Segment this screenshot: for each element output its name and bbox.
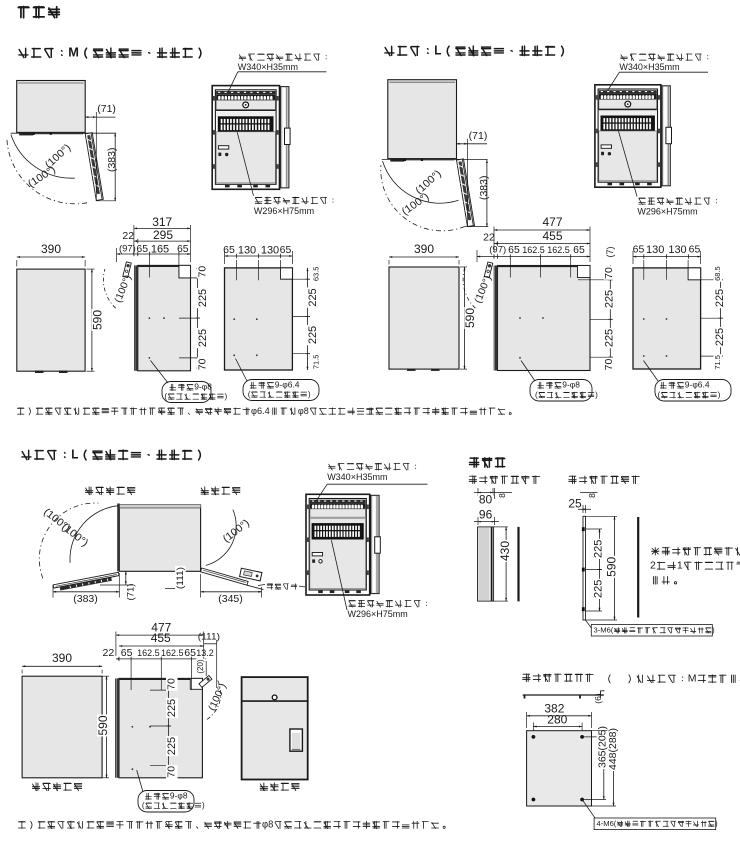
- svg-text:65: 65: [121, 647, 133, 659]
- svg-text:65: 65: [184, 647, 196, 659]
- svg-text:22: 22: [483, 232, 495, 244]
- svg-text:430: 430: [498, 541, 512, 561]
- svg-text:22: 22: [122, 230, 134, 242]
- svg-text:162.5: 162.5: [522, 245, 545, 255]
- svg-text:317: 317: [152, 215, 172, 229]
- svg-text:590: 590: [91, 310, 105, 330]
- svg-text:162.5: 162.5: [161, 648, 184, 658]
- svg-text:M: M: [688, 673, 697, 685]
- svg-text:φ6.4: φ6.4: [251, 405, 270, 416]
- svg-text:(71): (71): [469, 130, 488, 142]
- svg-text:): ): [202, 801, 205, 810]
- svg-text:9-φ6.4: 9-φ6.4: [685, 380, 710, 390]
- svg-text:W340×H35mm: W340×H35mm: [619, 62, 679, 72]
- svg-text:225: 225: [197, 329, 209, 347]
- svg-text:(71): (71): [126, 584, 137, 601]
- svg-text:225: 225: [166, 737, 178, 755]
- svg-text:71.5: 71.5: [311, 354, 320, 369]
- svg-text:70: 70: [603, 359, 615, 371]
- svg-text:(111): (111): [198, 631, 220, 642]
- svg-text:(: (: [248, 390, 251, 399]
- svg-text:590: 590: [463, 308, 477, 328]
- svg-text:): ): [718, 390, 721, 399]
- svg-text:(7): (7): [605, 246, 615, 257]
- svg-text:65: 65: [136, 243, 148, 255]
- svg-text:M: M: [68, 44, 79, 59]
- svg-text:9-φ6.4: 9-φ6.4: [275, 380, 300, 390]
- svg-text:(111): (111): [175, 567, 186, 589]
- svg-text:(383): (383): [478, 176, 490, 201]
- svg-text:96: 96: [479, 507, 493, 521]
- svg-text:(: (: [535, 390, 538, 399]
- svg-text:70: 70: [166, 766, 178, 778]
- svg-text:162.5: 162.5: [547, 245, 570, 255]
- svg-text:70: 70: [166, 678, 178, 690]
- svg-text:W340×H35mm: W340×H35mm: [327, 472, 387, 482]
- svg-text:25: 25: [568, 496, 582, 510]
- svg-text:225: 225: [714, 328, 726, 346]
- svg-text:162.5: 162.5: [137, 648, 160, 658]
- svg-text:448(288): 448(288): [607, 728, 619, 770]
- svg-text:65: 65: [573, 244, 585, 256]
- svg-text:65: 65: [223, 244, 235, 256]
- svg-text:φ8: φ8: [262, 820, 274, 831]
- svg-text:280: 280: [547, 712, 567, 726]
- svg-text:71.5: 71.5: [713, 355, 722, 370]
- svg-text:(71): (71): [97, 103, 116, 115]
- svg-text:8: 8: [497, 493, 507, 498]
- svg-text:130: 130: [261, 244, 279, 256]
- svg-text:L: L: [71, 446, 78, 461]
- svg-text:(97): (97): [119, 244, 136, 255]
- svg-text:80: 80: [479, 492, 493, 506]
- svg-text:13.2: 13.2: [196, 648, 214, 658]
- svg-text:225: 225: [714, 289, 726, 307]
- svg-text:225: 225: [197, 289, 209, 307]
- svg-text:W296×H75mm: W296×H75mm: [254, 206, 314, 216]
- svg-text:(: (: [142, 801, 145, 810]
- svg-text:225: 225: [593, 580, 605, 598]
- svg-text:9-φ8: 9-φ8: [194, 382, 212, 392]
- svg-text:295: 295: [153, 228, 173, 242]
- svg-text:22: 22: [103, 647, 115, 659]
- svg-text:(6): (6): [593, 693, 603, 704]
- svg-text:): ): [308, 390, 311, 399]
- svg-text:(383): (383): [106, 148, 118, 173]
- svg-text:225: 225: [593, 540, 605, 558]
- svg-text:(345): (345): [218, 593, 243, 605]
- svg-text:65: 65: [633, 244, 645, 256]
- svg-text:(: (: [164, 392, 167, 401]
- svg-text:L: L: [434, 42, 441, 57]
- svg-text:1: 1: [677, 560, 683, 572]
- svg-text:70: 70: [603, 267, 615, 279]
- svg-text:225: 225: [604, 290, 616, 308]
- svg-text:455: 455: [542, 229, 562, 243]
- svg-text:): ): [595, 390, 598, 399]
- svg-text:477: 477: [542, 215, 562, 229]
- svg-text:68.5: 68.5: [713, 266, 722, 281]
- svg-text:130: 130: [646, 244, 664, 256]
- svg-text:8: 8: [587, 493, 597, 498]
- svg-text:): ): [225, 392, 228, 401]
- svg-text:70: 70: [197, 266, 209, 278]
- svg-text:9-φ8: 9-φ8: [562, 380, 580, 390]
- svg-text:70: 70: [197, 358, 209, 370]
- svg-text:590: 590: [96, 715, 110, 735]
- svg-text:W296×H75mm: W296×H75mm: [637, 207, 697, 217]
- svg-text:65: 65: [177, 243, 189, 255]
- svg-text:65: 65: [508, 244, 520, 256]
- svg-text:390: 390: [52, 651, 72, 665]
- svg-text:φ8: φ8: [298, 405, 309, 416]
- svg-text:65: 65: [689, 244, 701, 256]
- svg-text:W296×H75mm: W296×H75mm: [348, 609, 408, 619]
- svg-text:3-M6(: 3-M6(: [594, 625, 614, 634]
- svg-text:590: 590: [605, 556, 619, 576]
- svg-text:390: 390: [41, 242, 61, 256]
- svg-text:4-M6(: 4-M6(: [597, 819, 617, 828]
- svg-text:(383): (383): [73, 593, 98, 605]
- svg-text:(20): (20): [196, 659, 205, 674]
- svg-text:130: 130: [668, 244, 686, 256]
- svg-text:225: 225: [307, 288, 319, 306]
- svg-text:225: 225: [166, 699, 178, 717]
- svg-text:455: 455: [151, 631, 171, 645]
- svg-text:63.5: 63.5: [311, 266, 320, 281]
- svg-text:65: 65: [280, 244, 292, 256]
- svg-text:225: 225: [307, 326, 319, 344]
- svg-text:(97): (97): [489, 244, 506, 255]
- svg-text:(: (: [658, 390, 661, 399]
- svg-text:390: 390: [414, 242, 434, 256]
- svg-text:225: 225: [604, 329, 616, 347]
- svg-text:130: 130: [238, 244, 256, 256]
- svg-text:9-φ8: 9-φ8: [170, 791, 188, 801]
- svg-text:W340×H35mm: W340×H35mm: [238, 62, 298, 72]
- svg-text:165: 165: [151, 243, 169, 255]
- svg-text:2: 2: [650, 560, 656, 572]
